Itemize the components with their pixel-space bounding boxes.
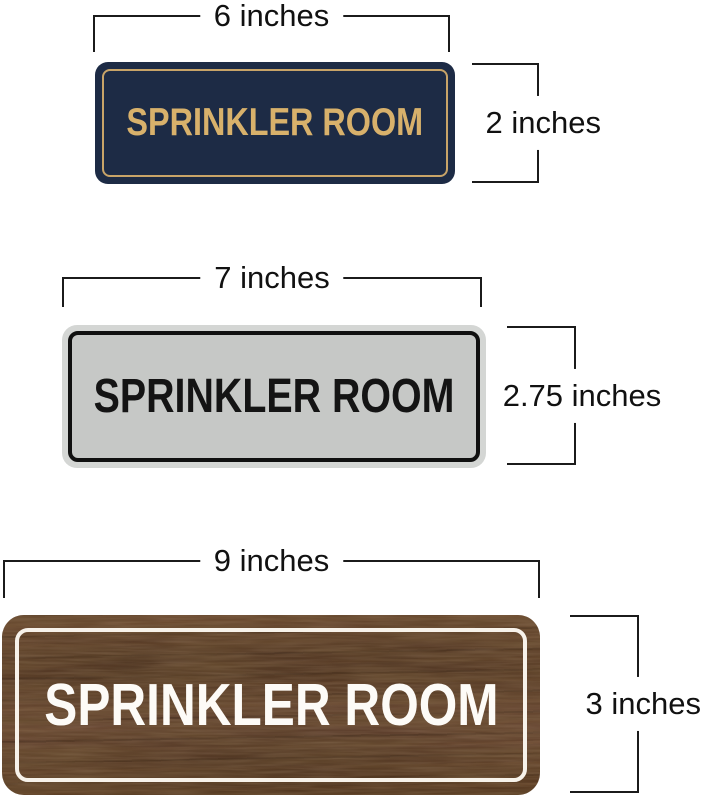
height-dimension-label-sign1: 2 inches: [478, 96, 609, 150]
height-dimension-line-sign2: 2.75 inches: [507, 326, 575, 465]
dimension-tick: [472, 63, 539, 65]
width-dimension-line-sign2: 7 inches: [62, 277, 482, 279]
width-dimension-label-sign1: 6 inches: [200, 0, 343, 34]
width-dimension-label-sign2: 7 inches: [200, 260, 343, 296]
dimension-tick: [507, 326, 576, 328]
dimension-tick: [570, 615, 639, 617]
width-dimension-line-sign3: 9 inches: [3, 560, 540, 562]
sign-text-silver-black: SPRINKLER ROOM: [94, 369, 455, 424]
dimension-tick: [448, 15, 450, 52]
sign-text-navy-gold: SPRINKLER ROOM: [127, 101, 424, 145]
product-dimensions-diagram: 6 inches SPRINKLER ROOM 2 inches 7 inche…: [0, 0, 722, 805]
sign-white-pinstripe-border: SPRINKLER ROOM: [15, 628, 527, 782]
sign-silver-black: SPRINKLER ROOM: [62, 325, 486, 468]
sign-walnut-wood: SPRINKLER ROOM: [2, 615, 540, 795]
height-dimension-label-sign3: 3 inches: [578, 677, 709, 731]
width-dimension-line-sign1: 6 inches: [93, 15, 450, 17]
sign-navy-gold: SPRINKLER ROOM: [95, 62, 455, 184]
sign-text-walnut: SPRINKLER ROOM: [44, 671, 498, 739]
sign-black-border: SPRINKLER ROOM: [68, 331, 480, 462]
dimension-tick: [472, 181, 539, 183]
dimension-tick: [62, 277, 64, 307]
dimension-tick: [480, 277, 482, 307]
dimension-tick: [538, 560, 540, 598]
dimension-tick: [570, 791, 639, 793]
dimension-tick: [93, 15, 95, 52]
height-dimension-line-sign3: 3 inches: [570, 615, 638, 793]
sign-gold-pinstripe-border: SPRINKLER ROOM: [102, 69, 448, 177]
width-dimension-label-sign3: 9 inches: [200, 543, 343, 579]
height-dimension-line-sign1: 2 inches: [472, 63, 538, 183]
dimension-tick: [507, 463, 576, 465]
dimension-tick: [3, 560, 5, 598]
height-dimension-label-sign2: 2.75 inches: [495, 368, 670, 422]
